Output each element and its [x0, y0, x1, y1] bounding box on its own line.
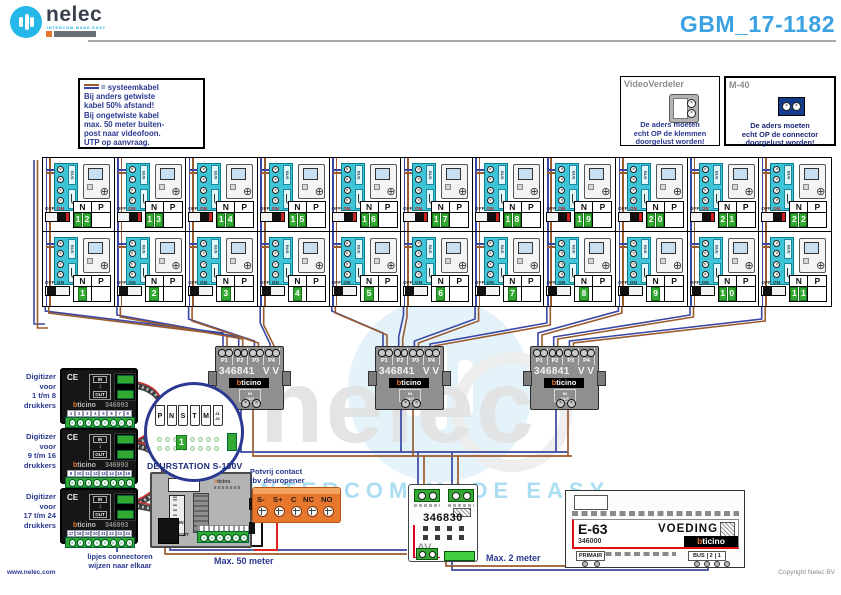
videophone-device: ⊕	[155, 238, 182, 273]
switch-slider	[618, 286, 643, 296]
terminal-label-dashes	[448, 504, 474, 507]
terminal-screw: ×	[773, 197, 780, 204]
device-button	[588, 184, 594, 190]
device-screen	[661, 168, 676, 180]
switch-labels: OFFON	[403, 206, 430, 211]
connector-orientation-note: lipjes connectorenwijzen naar elkaar	[70, 553, 170, 570]
terminal-screw: ×	[57, 187, 64, 194]
terminal-screw: ×	[118, 479, 126, 487]
number-badge: 1	[504, 213, 512, 228]
switch-off-label: OFF	[618, 206, 628, 211]
switch-off-label: OFF	[45, 280, 55, 285]
switch-knob	[272, 213, 281, 221]
switch-slider	[332, 286, 357, 296]
number-badge: 1	[728, 213, 736, 228]
videophone-unit: ××××BUS⊕OFFONNP2	[115, 232, 187, 306]
switch-knob	[630, 213, 639, 221]
switch-labels: OFFON	[117, 206, 144, 211]
switch-labels: OFFON	[761, 206, 788, 211]
switch-on-label: ON	[630, 280, 637, 285]
p-value	[307, 213, 325, 227]
terminal-screw: ×	[702, 240, 709, 247]
port-screw	[401, 349, 409, 357]
device-speaker-icon: ⊕	[601, 187, 610, 198]
switch-slider	[761, 212, 786, 222]
device-screen	[375, 168, 390, 180]
switch-knob	[763, 287, 772, 295]
videophone-unit: ××××BUS⊕OFFONNP14	[186, 158, 258, 232]
bus-label: BUS	[140, 239, 148, 259]
number-badge: 6	[436, 287, 446, 302]
device-speaker-icon: ⊕	[171, 261, 180, 272]
wire-stub	[261, 246, 269, 248]
np-table: NP1	[73, 275, 111, 302]
number-badge: 7	[441, 213, 449, 228]
terminal-screw: ×	[487, 261, 494, 268]
terminal-tab-jumper: J1J2	[213, 405, 223, 426]
system-cable-icon	[84, 84, 99, 89]
diagram-page: nelec INTERCOM MADE EASY nelec INTERCOM …	[0, 0, 841, 595]
videophone-device: ⊕	[799, 238, 826, 273]
bticino-logo: bticino	[229, 378, 269, 388]
bus-label: BUS	[713, 239, 721, 259]
wire-stub	[547, 169, 555, 171]
switch-on-label: ON	[487, 206, 494, 211]
videophone-unit: ××××BUS⊕OFFONNP6	[401, 232, 473, 306]
videophone-unit: ××××BUS⊕OFFONNP13	[115, 158, 187, 232]
bottom-screw: ×	[252, 399, 261, 408]
terminator-switch: OFFON	[260, 280, 287, 300]
terminal-screw: ×	[702, 187, 709, 194]
terminator-switch: OFFON	[761, 280, 788, 300]
terminal-screw: ×	[773, 271, 780, 278]
videophone-device: ⊕	[370, 164, 397, 199]
switch-slider	[117, 286, 142, 296]
terminator-switch: OFFON	[403, 206, 430, 226]
terminal-screw: ×	[85, 539, 93, 547]
terminal-screw: ×	[773, 261, 780, 268]
terminal-screw: ×	[773, 250, 780, 257]
switch-knob	[119, 287, 128, 295]
n-value: 22	[790, 213, 808, 227]
port-label: P2	[233, 358, 248, 364]
wire-stub	[619, 246, 627, 248]
button-number: 10	[75, 470, 83, 477]
m40-connector-icon: × ×	[778, 97, 805, 116]
n-header: N	[289, 202, 307, 213]
button-terminal-bar: ××××××××	[65, 477, 135, 488]
number-badge: 5	[364, 287, 374, 302]
box-caption: De aders moetenecht OP de connectordoorg…	[728, 122, 832, 148]
switch-labels: OFFON	[475, 280, 502, 285]
n-value: 18	[504, 213, 522, 227]
switch-labels: OFFON	[188, 280, 215, 285]
terminal-screw: ×	[110, 419, 118, 427]
videophone-unit: ××××BUS⊕OFFONNP5	[330, 232, 402, 306]
number-badge: 1	[217, 213, 225, 228]
box-title: M-40	[729, 80, 750, 90]
caption-line: drukkers	[12, 461, 56, 471]
terminal-screw: ×	[415, 187, 422, 194]
terminal-screw: ×	[344, 187, 351, 194]
button-terminal-bar: ××××××××	[65, 537, 135, 548]
bus-label: BUS	[355, 239, 363, 259]
switch-knob	[129, 213, 138, 221]
videophone-unit: ××××BUS⊕OFFONNP20	[616, 158, 688, 232]
terminal-screw: ×	[630, 240, 637, 247]
wire-stub	[118, 172, 126, 174]
switch-labels: OFFON	[332, 206, 359, 211]
digitizer-346993: CEIN↓OUTbticino346993910111213141516××××…	[60, 428, 138, 484]
terminator-switch: OFFON	[546, 206, 573, 226]
switch-on-label: ON	[200, 206, 207, 211]
device-speaker-icon: ⊕	[673, 261, 682, 272]
videophone-grid: ××××BUS⊕OFFONNP12××××BUS⊕OFFONNP13××××BU…	[42, 157, 832, 307]
switch-on-label: ON	[702, 206, 709, 211]
bus-label: BUS	[569, 165, 577, 185]
n-header: N	[575, 202, 593, 213]
n-value: 6	[432, 287, 450, 301]
switch-off-label: OFF	[546, 206, 556, 211]
wire-stub	[118, 169, 126, 171]
n-header: N	[719, 276, 737, 287]
device-screen	[661, 242, 676, 254]
switch-on-label: ON	[558, 280, 565, 285]
button-number-strip: 1718192021222324	[67, 530, 132, 537]
terminal-screw: ×	[487, 176, 494, 183]
terminal-screw: ×	[415, 240, 422, 247]
terminal-label: NC	[303, 495, 314, 504]
bottom-screw: ×	[241, 399, 250, 408]
device-speaker-icon: ⊕	[243, 261, 252, 272]
device-screen	[303, 168, 318, 180]
device-button	[803, 258, 809, 264]
switch-on-label: ON	[415, 280, 422, 285]
device-button	[302, 184, 308, 190]
switch-slider	[260, 286, 285, 296]
note-line: UTP op aanvraag.	[84, 138, 199, 147]
port-cell: P4	[264, 348, 280, 365]
terminal-screw: ×	[272, 166, 279, 173]
bus-label: BUS	[784, 165, 792, 185]
n-value: 19	[575, 213, 593, 227]
switch-slider	[260, 212, 285, 222]
videophone-device: ⊕	[513, 164, 540, 199]
wire-stub	[404, 172, 412, 174]
terminator-switch: OFFON	[260, 206, 287, 226]
terminal-screw: ×	[487, 197, 494, 204]
number-badge: 1	[361, 213, 369, 228]
button-number-strip: 12345678	[67, 410, 132, 417]
note-line: max. 50 meter buiten-	[84, 120, 199, 129]
bticino-logo: bticino	[544, 378, 584, 388]
ce-mark: CE	[67, 493, 78, 502]
caption-line: 1 t/m 8	[12, 391, 56, 401]
button-number: 9	[67, 470, 75, 477]
port-label: P4	[579, 358, 594, 364]
system-cable-note: = systeemkabel Bij anders getwiste kabel…	[78, 78, 205, 149]
button-number: 7	[116, 410, 124, 417]
p-header: P	[307, 276, 325, 287]
videophone-device: ⊕	[584, 164, 611, 199]
terminal-screw: ×	[69, 419, 77, 427]
wire-stub	[691, 169, 699, 171]
button-number: 15	[116, 470, 124, 477]
bus-label: BUS	[784, 239, 792, 259]
terminal-screw: ×	[630, 187, 637, 194]
switch-labels: OFFON	[761, 280, 788, 285]
port-label: P4	[424, 358, 439, 364]
n-value: 8	[575, 287, 593, 301]
p-value	[379, 287, 397, 301]
n-value: 7	[504, 287, 522, 301]
terminal-screw: ×	[773, 166, 780, 173]
terminal-screw: ×	[558, 240, 565, 247]
switch-on-label: ON	[487, 280, 494, 285]
number-badge: 2	[149, 287, 159, 302]
dry-contact-lip	[253, 488, 340, 494]
device-speaker-icon: ⊕	[171, 187, 180, 198]
port-cell: P2	[233, 348, 249, 365]
switch-on-label: ON	[272, 206, 279, 211]
ribbon-connector	[158, 518, 179, 544]
switch-on-label: ON	[773, 206, 780, 211]
bus-label: BUS	[211, 165, 219, 185]
device-button	[230, 258, 236, 264]
wire-stub	[261, 243, 269, 245]
switch-labels: OFFON	[690, 280, 717, 285]
button-number: 2	[75, 410, 83, 417]
port-screw	[272, 349, 280, 357]
mounting-ear	[368, 371, 377, 386]
terminal-screw: ×	[558, 197, 565, 204]
terminator-switch: OFFON	[188, 280, 215, 300]
videophone-device: ⊕	[441, 238, 468, 273]
button-number: 13	[99, 470, 107, 477]
n-header: N	[289, 276, 307, 287]
switch-on-label: ON	[57, 280, 64, 285]
terminal-screw: ×	[57, 250, 64, 257]
terminal-screw: ×	[200, 271, 207, 278]
number-badge: 1	[719, 287, 727, 302]
wire-stub	[691, 246, 699, 248]
wire-stub	[762, 246, 770, 248]
np-table: NP4	[288, 275, 326, 302]
caption-line: voor	[12, 442, 56, 452]
n-header: N	[790, 202, 808, 213]
p-header: P	[164, 276, 182, 287]
digitizer-caption: Digitizervoor17 t/m 24drukkers	[12, 492, 56, 530]
wire-stub	[547, 246, 555, 248]
switch-off-label: OFF	[188, 206, 198, 211]
n-header: N	[361, 276, 379, 287]
box-caption: De aders moetenecht OP de klemmendoorgel…	[623, 121, 717, 147]
videophone-unit: ××××BUS⊕OFFONNP8	[544, 232, 616, 306]
n-value: 3	[217, 287, 235, 301]
videophone-unit: ××××BUS⊕OFFONNP16	[330, 158, 402, 232]
switch-off-label: OFF	[475, 280, 485, 285]
switch-knob	[620, 287, 629, 295]
p-header: P	[808, 202, 826, 213]
switch-slider	[188, 212, 213, 222]
screw-terminal	[307, 506, 318, 517]
device-screen	[589, 168, 604, 180]
terminator-switch: OFFON	[618, 206, 645, 226]
number-badge: 1	[790, 287, 798, 302]
caption-line: voor	[12, 382, 56, 392]
terminator-switch: OFFON	[117, 280, 144, 300]
n-header: N	[504, 276, 522, 287]
videophone-unit: ××××BUS⊕OFFONNP18	[473, 158, 545, 232]
terminal-screw: ×	[344, 166, 351, 173]
device-button	[660, 184, 666, 190]
terminal-screw: ×	[101, 419, 109, 427]
socket-green-bar	[117, 435, 134, 444]
switch-knob	[190, 287, 199, 295]
terminal-screw: ×	[93, 539, 101, 547]
device-screen	[589, 242, 604, 254]
terminal-screw: ×	[272, 261, 279, 268]
terminal-screw: ×	[630, 261, 637, 268]
wire-stub	[476, 246, 484, 248]
switch-knob	[47, 287, 56, 295]
caption-line: drukkers	[12, 521, 56, 531]
switch-knob	[487, 213, 496, 221]
videophone-device: ⊕	[298, 238, 325, 273]
terminator-switch: OFFON	[475, 280, 502, 300]
switch-on-label: ON	[200, 280, 207, 285]
n-value: 9	[647, 287, 665, 301]
terminal-tab: N	[167, 405, 177, 426]
number-badge: 3	[155, 213, 163, 228]
n-header: N	[217, 202, 235, 213]
number-badge: 9	[584, 213, 592, 228]
switch-slider	[690, 286, 715, 296]
button-number: 23	[116, 530, 124, 537]
switch-labels: OFFON	[618, 280, 645, 285]
wire-stub	[547, 243, 555, 245]
terminal-screw: ×	[487, 240, 494, 247]
terminal-screw: ×	[200, 197, 207, 204]
np-table: NP22	[789, 201, 827, 228]
n-header: N	[647, 276, 665, 287]
device-button	[302, 258, 308, 264]
device-speaker-icon: ⊕	[530, 261, 539, 272]
np-table: NP12	[73, 201, 111, 228]
website-link[interactable]: www.nelec.com	[7, 569, 56, 576]
device-button	[517, 184, 523, 190]
switch-knob	[477, 287, 486, 295]
device-screen	[231, 168, 246, 180]
note-line: Bij ongetwiste kabel	[84, 111, 199, 120]
port-label: P1	[532, 358, 547, 364]
device-button	[517, 258, 523, 264]
p-value	[450, 287, 468, 301]
bus-label: BUS	[355, 165, 363, 185]
terminal-screw: ×	[415, 166, 422, 173]
bus-label: BUS	[498, 165, 506, 185]
terminal-screw: ×	[57, 176, 64, 183]
distributor-model: 346841	[219, 366, 255, 377]
terminal-screw: ×	[344, 240, 351, 247]
np-table: NP16	[360, 201, 398, 228]
p-header: P	[665, 276, 683, 287]
terminal-screw: ×	[77, 419, 85, 427]
terminal-screw: ×	[93, 419, 101, 427]
switch-on-label: ON	[702, 280, 709, 285]
document-id: GBM_17-1182	[680, 11, 835, 38]
p-header: P	[92, 276, 110, 287]
terminal-screw: ×	[702, 166, 709, 173]
screw-terminal	[257, 506, 268, 517]
button-number: 6	[107, 410, 115, 417]
switch-knob	[57, 213, 66, 221]
button-number: 16	[124, 470, 132, 477]
socket-green-bar	[117, 375, 134, 384]
digitizer-346993: CEIN↓OUTbticino34699312345678××××××××	[60, 368, 138, 424]
device-screen	[804, 242, 819, 254]
switch-labels: OFFON	[45, 206, 72, 211]
bus-label: BUS	[641, 165, 649, 185]
terminal-screw: ×	[344, 271, 351, 278]
terminal-screw: ×	[57, 271, 64, 278]
bticino-logo: bticino	[214, 479, 230, 485]
np-table: NP18	[503, 201, 541, 228]
door-station-green-terminal: ××××××	[197, 531, 249, 543]
port-label: P1	[217, 358, 232, 364]
door-station: bticino IN OUT ××××××	[150, 472, 252, 548]
n-header: N	[647, 202, 665, 213]
digitizer-346993: CEIN↓OUTbticino3469931718192021222324×××…	[60, 488, 138, 544]
switch-slider	[475, 286, 500, 296]
ce-mark: CE	[67, 433, 78, 442]
wire-stub	[118, 243, 126, 245]
p-header: P	[164, 202, 182, 213]
wire-stub	[762, 243, 770, 245]
videophone-unit: ××××BUS⊕OFFONNP11	[759, 232, 831, 306]
terminal-screw: ×	[77, 539, 85, 547]
n-header: N	[719, 202, 737, 213]
number-badge: 8	[579, 287, 589, 302]
np-table: NP19	[574, 201, 612, 228]
psu-model: E-63	[578, 521, 608, 537]
digitizer-model: 346993	[105, 522, 128, 529]
bus-label: BUS	[641, 239, 649, 259]
screw-terminal	[291, 506, 302, 517]
p-value	[164, 287, 182, 301]
terminal-screw: ×	[415, 271, 422, 278]
wire-stub	[619, 243, 627, 245]
p-header: P	[737, 202, 755, 213]
n-header: N	[361, 202, 379, 213]
hatch-mark	[720, 522, 735, 537]
p-value	[737, 213, 755, 227]
door-station-label-bar	[214, 486, 240, 489]
screw-terminal	[582, 561, 588, 567]
p-value	[665, 213, 683, 227]
port-screw	[540, 349, 548, 357]
wire-stub	[691, 243, 699, 245]
videophone-unit: ××××BUS⊕OFFONNP21	[688, 158, 760, 232]
in-out-diagram: IN↓OUT	[89, 434, 111, 460]
terminal-screw: ×	[558, 250, 565, 257]
button-terminal-bar: ××××××××	[65, 417, 135, 428]
device-speaker-icon: ⊕	[315, 261, 324, 272]
port-label: P2	[393, 358, 408, 364]
wire-stub	[46, 172, 54, 174]
max-2m-label: Max. 2 meter	[486, 553, 541, 563]
terminator-switch: OFFON	[546, 280, 573, 300]
